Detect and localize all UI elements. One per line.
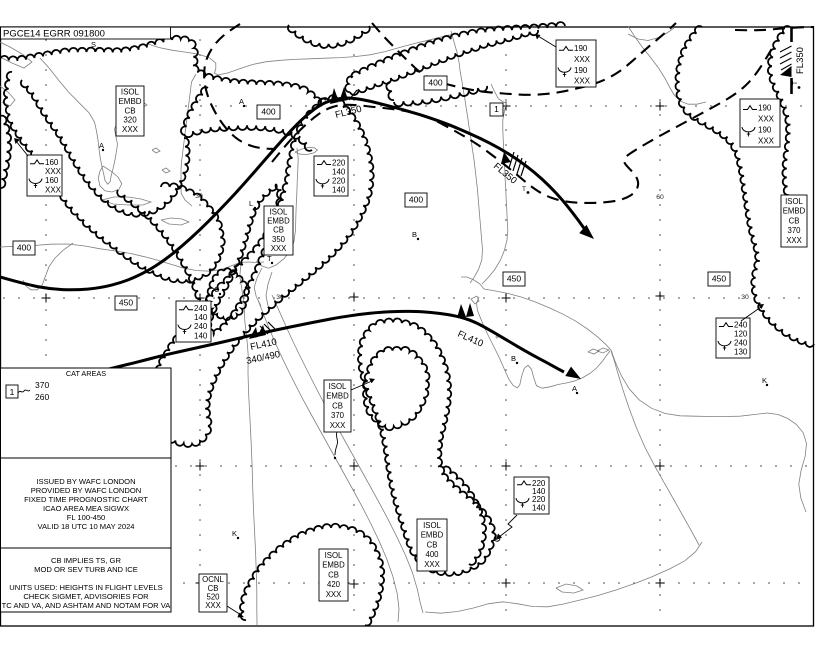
svg-text:1: 1 (10, 387, 15, 397)
svg-text:PGCE14 EGRR 091800: PGCE14 EGRR 091800 (3, 29, 105, 40)
svg-text:60: 60 (656, 194, 664, 201)
svg-text:370: 370 (35, 380, 49, 390)
svg-text:A: A (99, 141, 104, 150)
svg-text:CAT AREAS: CAT AREAS (66, 369, 106, 378)
svg-text:C: C (214, 285, 220, 294)
svg-text:220140220140: 220140220140 (532, 479, 546, 513)
svg-text:240120240130: 240120240130 (734, 321, 748, 357)
svg-text:K: K (762, 376, 767, 385)
svg-text:T: T (792, 81, 799, 85)
svg-text:1: 1 (494, 104, 499, 114)
svg-text:400: 400 (17, 243, 31, 253)
svg-text:30: 30 (741, 294, 749, 301)
svg-text:400: 400 (409, 195, 423, 205)
svg-text:K: K (232, 529, 237, 538)
svg-text:T: T (522, 186, 526, 193)
svg-text:220140220140: 220140220140 (332, 159, 346, 195)
svg-text:450: 450 (507, 274, 521, 284)
svg-text:400: 400 (261, 107, 275, 117)
svg-text:B: B (511, 354, 516, 363)
svg-text:B: B (412, 230, 417, 239)
svg-text:A: A (239, 97, 244, 106)
svg-text:T: T (267, 254, 272, 263)
svg-text:260: 260 (35, 392, 49, 402)
svg-text:450: 450 (712, 274, 726, 284)
svg-text:A: A (572, 384, 577, 393)
svg-text:450: 450 (119, 298, 133, 308)
svg-text:S: S (91, 40, 96, 49)
svg-text:L: L (249, 199, 253, 208)
svg-text:400: 400 (428, 78, 442, 88)
svg-text:FL350: FL350 (795, 47, 806, 74)
svg-text:240140240140: 240140240140 (194, 304, 208, 341)
